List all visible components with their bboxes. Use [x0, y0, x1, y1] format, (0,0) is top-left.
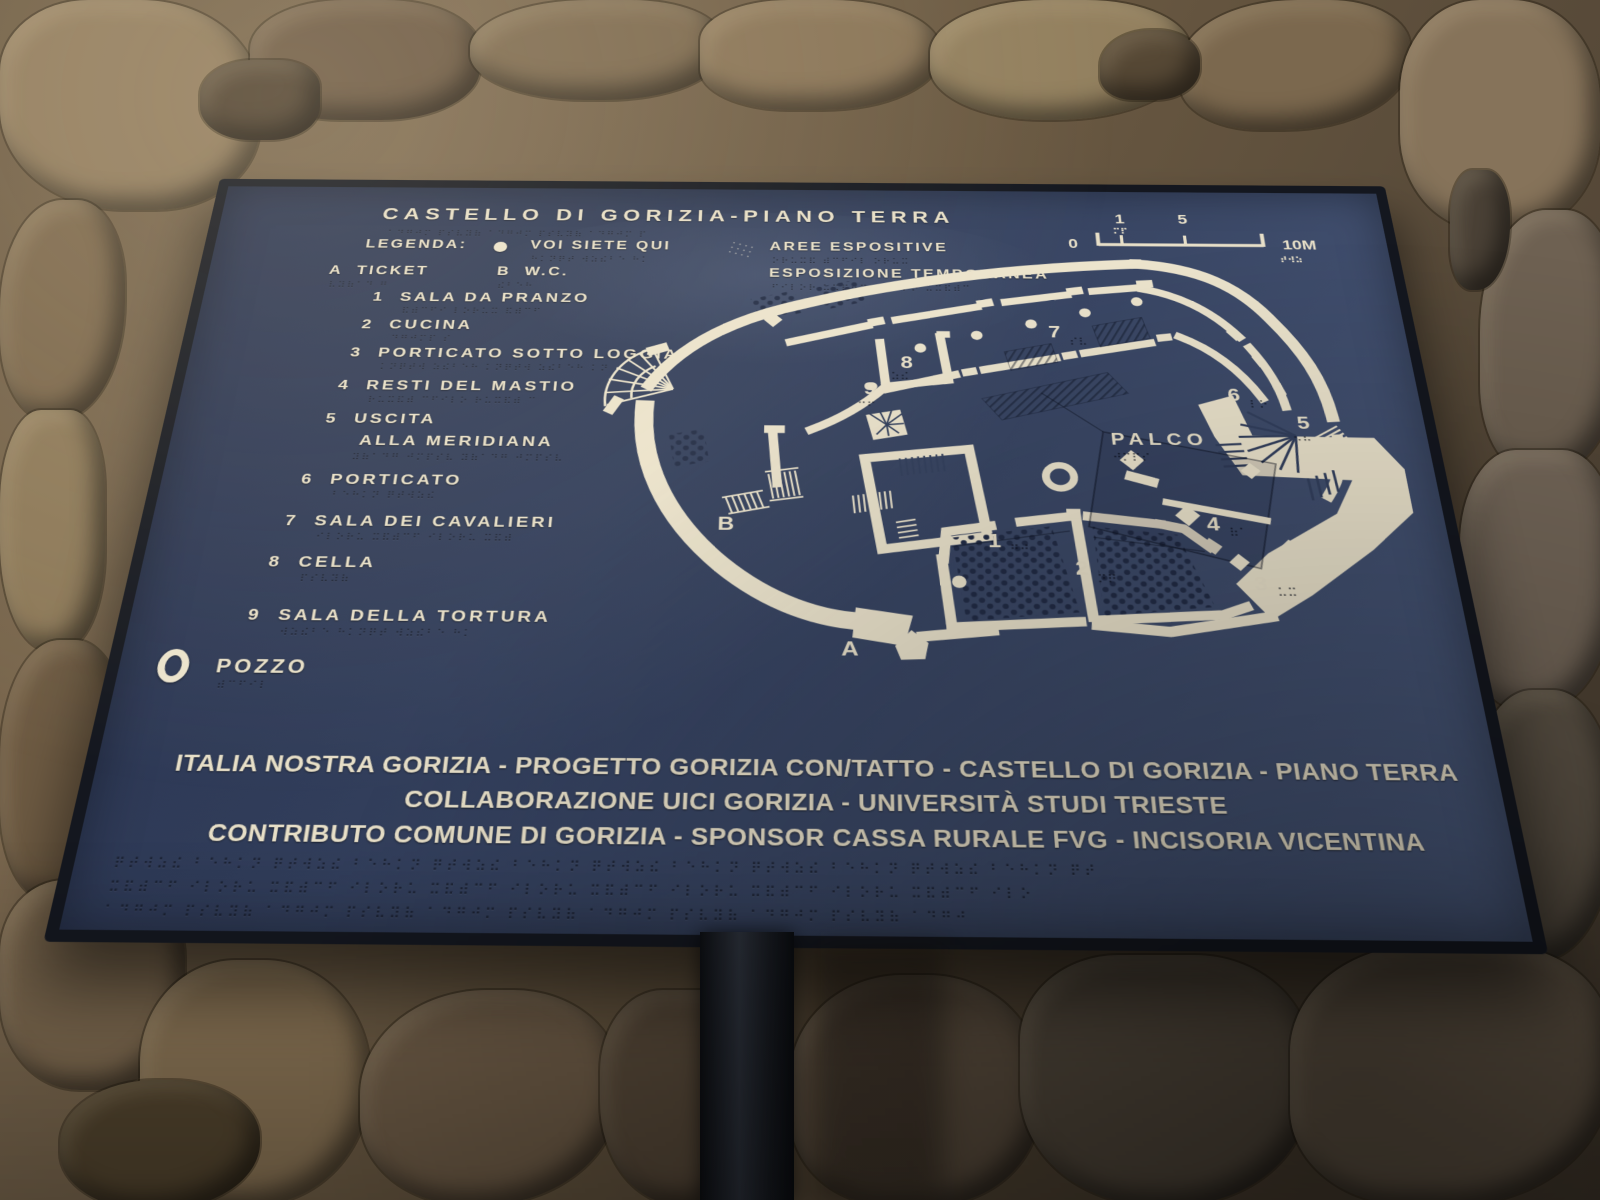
stand-post [700, 932, 794, 1200]
wc-area-walls [720, 387, 988, 550]
braille-room-7: ⠊⠇⠕⠗⠥ ⠭⠯⠾⠉⠋ ⠊⠇⠕⠗⠥ ⠭⠯⠾ [314, 532, 514, 544]
braille-footer-3: ⠁⠙⠛⠚⠍ ⠏⠎⠧⠽⠷ ⠁⠙⠛⠚⠍ ⠏⠎⠧⠽⠷ ⠁⠙⠛⠚⠍ ⠏⠎⠧⠽⠷ ⠁⠙⠛⠚… [101, 902, 970, 927]
panel-title: CASTELLO DI GORIZIA-PIANO TERRA [381, 205, 955, 227]
you-are-here-dot-icon [493, 242, 508, 252]
room-1-expo-dots [951, 526, 1080, 622]
map-label-a: A [841, 636, 859, 660]
room-item-5: 5 USCITA [324, 410, 437, 427]
room-item-9: 9 SALA DELLA TORTURA [246, 606, 552, 627]
stairs-run-small [896, 519, 919, 538]
tactile-map-panel: CASTELLO DI GORIZIA-PIANO TERRA ⠁⠙⠛⠚⠍ ⠏⠎… [43, 179, 1548, 954]
floor-plan-map: 1 2 3 4 5 6 7 8 9 A B PALCO ⠛⠚ ⠝⠟ ⠥⠭ ⠷⠁ [573, 237, 1500, 703]
wc-key: B [496, 265, 512, 278]
stone [0, 200, 125, 420]
stone [700, 0, 940, 110]
braille-room-3: ⠅⠝⠟⠞⠺ ⠵⠮⠃⠑⠓ ⠅⠝⠟⠞⠺ ⠵⠮⠃⠑⠓ ⠅⠝ [379, 362, 610, 373]
stone [470, 0, 720, 100]
svg-text:⠷⠁: ⠷⠁ [1228, 527, 1249, 540]
room-item-5-line2: ALLA MERIDIANA [358, 432, 555, 450]
braille-pozzo: ⠾⠉⠋⠊⠇ [215, 680, 270, 693]
svg-text:⠵⠮: ⠵⠮ [891, 371, 910, 383]
map-label-7: 7 [1048, 322, 1062, 341]
photo-scene: CASTELLO DI GORIZIA-PIANO TERRA ⠁⠙⠛⠚⠍ ⠏⠎… [0, 0, 1600, 1200]
footer-line-1: ITALIA NOSTRA GORIZIA - PROGETTO GORIZIA… [151, 750, 1482, 787]
stairs-fan-mid [866, 409, 908, 440]
svg-text:⠇⠕: ⠇⠕ [1249, 399, 1270, 411]
svg-text:⠎⠧: ⠎⠧ [1069, 337, 1088, 348]
footer-line-2: COLLABORAZIONE UICI GORIZIA - UNIVERSITÀ… [144, 784, 1490, 822]
legend-wc: B W.C. [496, 265, 569, 279]
braille-room-4: ⠗⠥⠭⠯⠾ ⠉⠋⠊⠇⠕ ⠗⠥⠭⠯⠾ ⠉ [367, 395, 538, 406]
svg-text:⠥⠭: ⠥⠭ [1277, 587, 1299, 600]
legend-ticket: A TICKET [328, 264, 430, 279]
stairs-ladder-1 [764, 468, 803, 502]
map-label-6: 6 [1226, 385, 1241, 405]
room-item-4: 4 RESTI DEL MASTIO [337, 377, 578, 395]
post-shadow [815, 945, 945, 1200]
map-label-b: B [717, 512, 734, 534]
map-label-5: 5 [1295, 412, 1311, 433]
ticket-label: TICKET [356, 264, 430, 278]
room-item-6: 6 PORTICATO [300, 471, 464, 489]
svg-text:⠑⠓: ⠑⠓ [1292, 436, 1313, 448]
tactile-panel-perspective: CASTELLO DI GORIZIA-PIANO TERRA ⠁⠙⠛⠚⠍ ⠏⠎… [43, 179, 1548, 954]
svg-text:⠝⠟: ⠝⠟ [1097, 573, 1118, 586]
scale-5: 5 [1177, 213, 1189, 227]
map-label-9: 9 [864, 378, 877, 398]
stone [60, 1080, 260, 1200]
map-label-8: 8 [900, 352, 913, 372]
legend-label: LEGENDA: [364, 237, 468, 251]
braille-room-9: ⠺⠵⠮⠃⠑ ⠓⠅⠝⠟⠞ ⠺⠵⠮⠃⠑ ⠓⠅ [278, 627, 474, 640]
braille-room-5: ⠽⠷⠁⠙⠛ ⠚⠍⠏⠎⠧ ⠽⠷⠁⠙⠛ ⠚⠍⠏⠎⠧ [350, 452, 564, 464]
braille-scale-1: ⠍⠏ [1112, 228, 1128, 236]
footer-line-3: CONTRIBUTO COMUNE DI GORIZIA - SPONSOR C… [136, 819, 1496, 857]
stairs-ladder-2 [721, 490, 769, 514]
ticket-key: A [328, 264, 344, 277]
stone [0, 410, 105, 650]
wc-label: W.C. [524, 265, 570, 279]
pozzo-label: POZZO [214, 656, 310, 679]
room-item-2: 2 CUCINA [360, 317, 474, 333]
stone [1020, 955, 1310, 1200]
map-label-palco: PALCO [1110, 430, 1210, 449]
stone [1180, 0, 1410, 130]
braille-room-1: ⠯⠾⠉⠋⠊ ⠇⠕⠗⠥⠭ ⠯⠾⠉⠋ [401, 306, 543, 316]
svg-text:⠉⠋: ⠉⠋ [857, 401, 876, 413]
braille-room-2: ⠙⠛⠚⠍⠏ ⠎ [390, 334, 453, 344]
braille-room-6: ⠃⠑⠓⠅⠝ ⠟⠞⠺⠵⠮ [330, 490, 437, 501]
svg-text:⠚⠍⠏⠎: ⠚⠍⠏⠎ [1112, 453, 1152, 465]
room-item-1: 1 SALA DA PRANZO [372, 289, 591, 305]
braille-footer-2: ⠭⠯⠾⠉⠋ ⠊⠇⠕⠗⠥ ⠭⠯⠾⠉⠋ ⠊⠇⠕⠗⠥ ⠭⠯⠾⠉⠋ ⠊⠇⠕⠗⠥ ⠭⠯⠾⠉… [106, 878, 1035, 903]
svg-text:⠛⠚: ⠛⠚ [1010, 544, 1031, 557]
room-item-8: 8 CELLA [267, 553, 377, 572]
room-item-7: 7 SALA DEI CAVALIERI [283, 512, 556, 531]
map-label-2: 2 [1075, 557, 1090, 580]
braille-room-8: ⠏⠎⠧⠽⠷ [298, 573, 351, 585]
scale-1: 1 [1114, 212, 1125, 226]
stone [360, 990, 620, 1200]
pozzo-well-ring [1045, 465, 1075, 488]
pozzo-ring-icon [154, 649, 192, 683]
stone [1100, 30, 1200, 100]
braille-footer-1: ⠟⠞⠺⠵⠮ ⠃⠑⠓⠅⠝ ⠟⠞⠺⠵⠮ ⠃⠑⠓⠅⠝ ⠟⠞⠺⠵⠮ ⠃⠑⠓⠅⠝ ⠟⠞⠺⠵… [111, 855, 1099, 880]
stone [1290, 945, 1600, 1200]
stone [200, 60, 320, 140]
map-label-1: 1 [987, 529, 1002, 551]
